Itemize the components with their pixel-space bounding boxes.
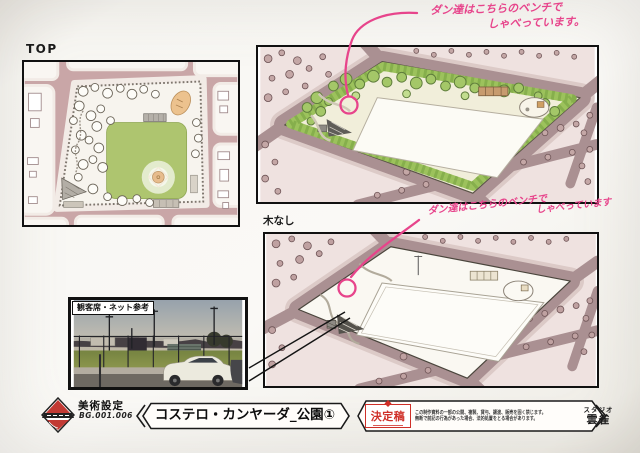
disclaimer-line: 無断で前記の行為があった場合、法的処置をとる場合があります。 [415,416,546,423]
stamp-ornament-icon [384,400,391,407]
pergola-bench [470,271,497,280]
sheet-title: コステロ・カンヤーダ_公園① [149,402,341,430]
aerial-view-panel [256,45,599,204]
playground-circle [504,281,533,301]
no-trees-label: 木なし [263,213,295,228]
note-line: しゃべっています。 [487,15,585,32]
top-view-label: TOP [26,42,58,56]
ball-field [107,123,187,199]
top-view-map [24,62,238,225]
photo-caption: 観客席・ネット参考 [72,301,154,315]
approval-stamp: 決定稿 [365,404,411,428]
stamp-text: 決定稿 [371,411,406,422]
stamp-date-line [373,425,404,427]
approval-banner: 決定稿 この制作資料の一部の公開、複製、貸与、譲渡、販売を固く禁じます。 無断で… [356,399,612,433]
reference-photo-panel: 観客席・ネット参考 [68,297,248,390]
settei-sheet: TOP [0,0,640,453]
handwritten-note-1: ダン達はこちらのベンチで しゃべっています。 [430,0,585,34]
production-logo [41,397,75,433]
playground-circle [520,98,549,117]
top-view-panel [22,60,240,227]
aerial-no-trees [265,234,597,386]
aerial-no-trees-panel [263,232,599,388]
board-number: BG.001.006 [79,411,133,420]
disclaimer-line: この制作資料の一部の公開、複製、貸与、譲渡、販売を固く禁じます。 [415,410,546,417]
aerial-view [258,47,597,202]
pergola-bench [479,87,508,96]
title-banner: コステロ・カンヤーダ_公園① [135,402,351,430]
disclaimer-text: この制作資料の一部の公開、複製、貸与、譲渡、販売を固く禁じます。 無断で前記の行… [415,410,546,423]
studio-name-kanji: 雲雀 [583,414,615,426]
studio-name: スタジオ 雲雀 [583,407,615,425]
